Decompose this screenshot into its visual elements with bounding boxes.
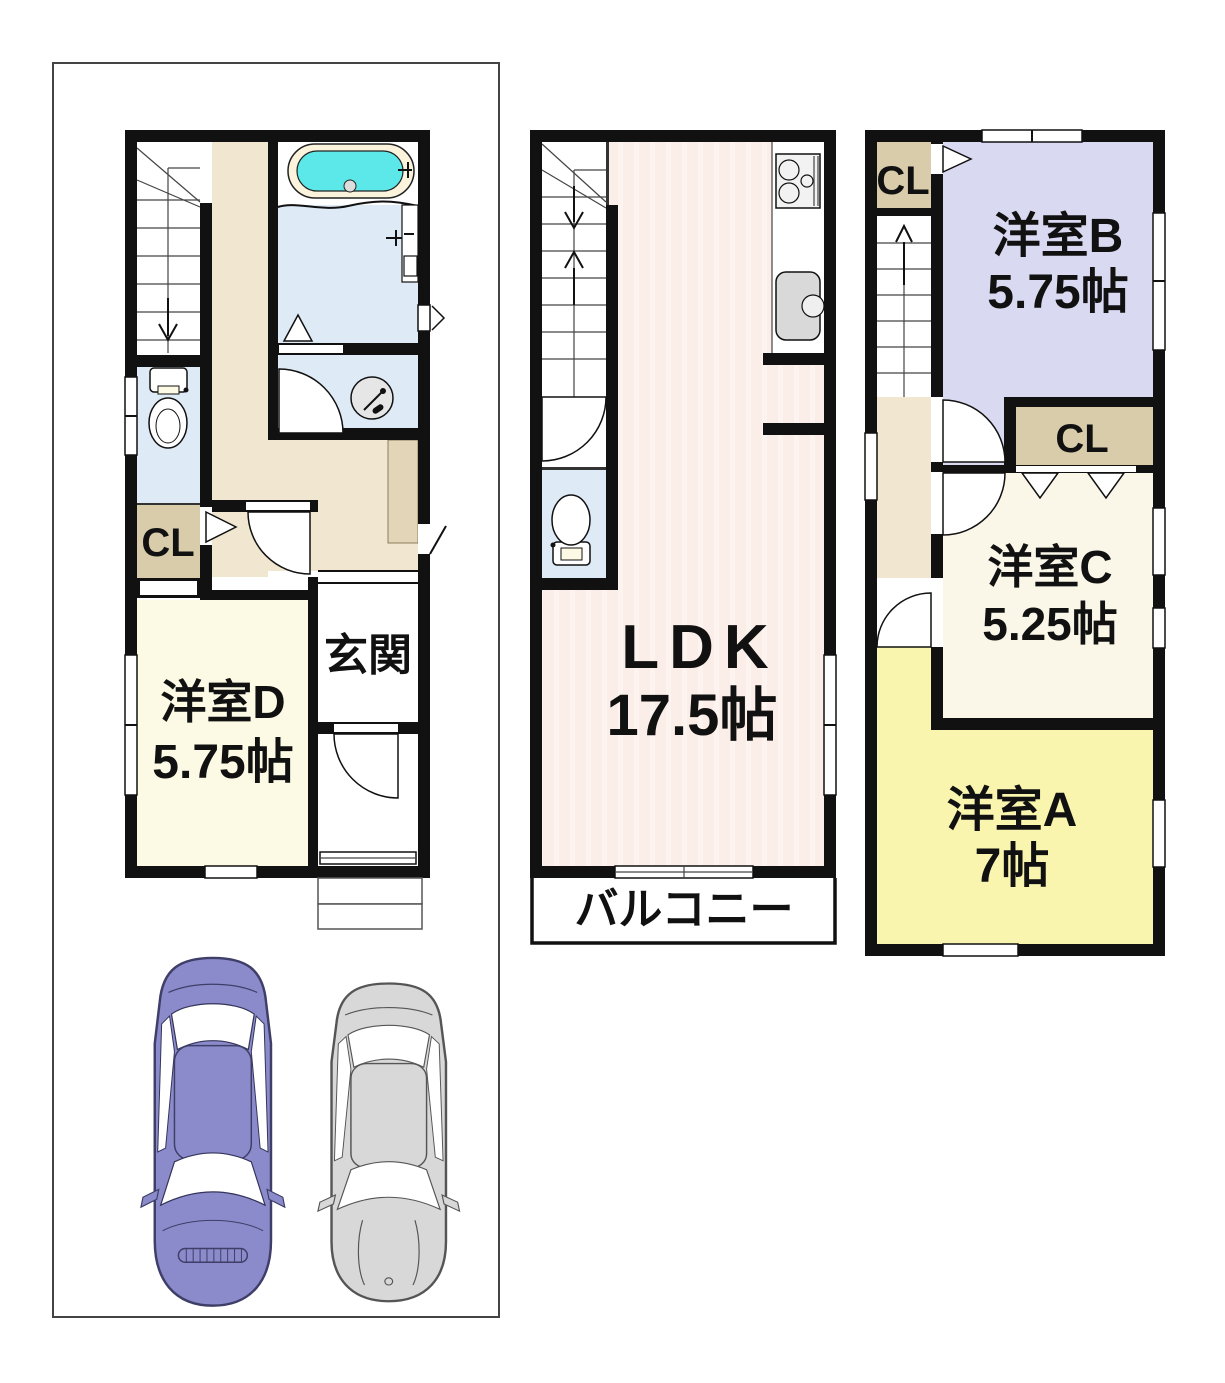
wash-basin-icon: [351, 377, 393, 419]
room-a-size: 7帖: [975, 840, 1050, 893]
hallway-3f: [877, 397, 931, 578]
closet-label-1f: CL: [141, 521, 194, 565]
room-c-size: 5.25帖: [982, 598, 1118, 650]
room-b-size: 5.75帖: [987, 266, 1128, 319]
closet-mid-label: CL: [1055, 417, 1108, 461]
entrance-step: [388, 440, 418, 543]
closet-window-wall: [140, 581, 197, 595]
roof: [174, 1046, 251, 1160]
agarikamachi-lines: [318, 571, 418, 583]
room-a-label: 洋室A: [947, 784, 1078, 837]
ldk-size: 17.5帖: [607, 683, 778, 748]
front-door-mark: [430, 526, 446, 554]
car-gray: [318, 984, 460, 1302]
door-swing: [877, 593, 931, 647]
room-d: [137, 600, 308, 866]
porch-steps: [318, 878, 422, 929]
floorplan-svg: CL 玄関 洋室D 5.75帖: [0, 0, 1225, 1383]
balcony-label: バルコニー: [574, 885, 793, 934]
room-b-label: 洋室B: [993, 210, 1124, 263]
room-d-label: 洋室D: [160, 676, 285, 728]
floor-plan-2f: バルコニー LDK 17.5帖: [530, 130, 836, 943]
room-a: [877, 730, 1153, 944]
parking-area: [141, 958, 460, 1306]
door-swing: [334, 734, 398, 798]
roof: [351, 1064, 427, 1168]
ldk-label: LDK: [621, 613, 778, 682]
floor-plan-3f: CL 洋室B 5.75帖 CL 洋室C 5.25帖 洋室A 7帖: [865, 130, 1165, 956]
entrance-label: 玄関: [324, 631, 412, 680]
vent-mark: [432, 306, 444, 330]
balcony: バルコニー: [532, 878, 835, 943]
floorplan-page: CL 玄関 洋室D 5.75帖: [0, 0, 1225, 1383]
room-d-size: 5.75帖: [152, 736, 293, 789]
floor-plan-1f: CL 玄関 洋室D 5.75帖: [125, 130, 446, 929]
closet-top-label: CL: [876, 159, 929, 203]
room-c-label: 洋室C: [987, 541, 1112, 593]
car-purple: [141, 958, 285, 1306]
